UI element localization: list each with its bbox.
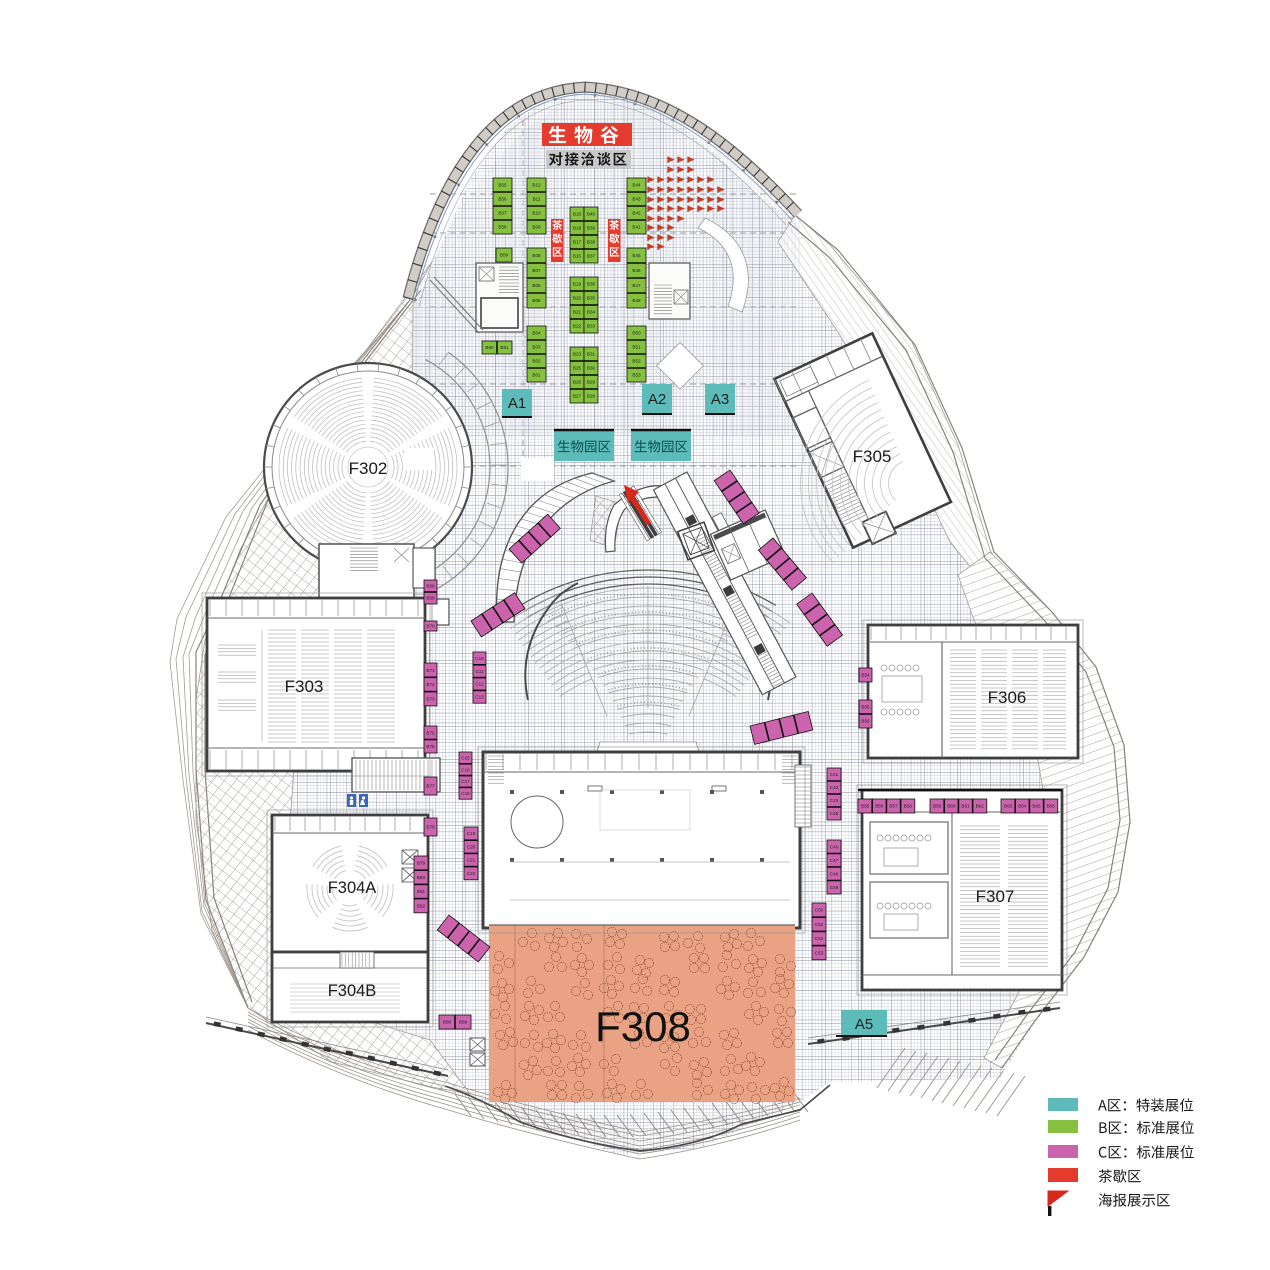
svg-text:B09: B09 [532,225,541,230]
svg-text:B01: B01 [532,373,541,378]
svg-text:B43: B43 [632,197,641,202]
svg-text:C47: C47 [830,858,839,863]
svg-text:B31: B31 [587,352,596,357]
svg-text:B22: B22 [573,324,582,329]
svg-text:C15: C15 [461,756,470,761]
svg-text:B59: B59 [933,804,942,809]
svg-text:A1: A1 [508,395,526,412]
svg-text:B66: B66 [1047,804,1056,809]
svg-text:B71: B71 [426,668,435,673]
svg-text:C53: C53 [815,950,824,955]
svg-text:B65: B65 [1032,804,1041,809]
svg-text:C17: C17 [461,779,470,784]
svg-text:B34: B34 [587,310,596,315]
svg-text:B76: B76 [426,744,435,749]
svg-text:B12: B12 [532,183,541,188]
svg-text:B11: B11 [533,197,541,202]
svg-text:C10: C10 [475,656,484,661]
svg-text:B07: B07 [532,268,541,273]
svg-text:B82: B82 [417,903,426,908]
svg-text:B25: B25 [573,366,582,371]
svg-text:B57: B57 [889,804,898,809]
svg-text:A3: A3 [711,391,729,408]
svg-text:C43: C43 [830,798,839,803]
svg-text:B37: B37 [587,254,596,259]
svg-text:C21: C21 [467,858,476,863]
svg-text:B62: B62 [976,804,985,809]
svg-text:B17: B17 [573,240,582,245]
svg-text:A2: A2 [648,391,666,408]
svg-text:B54: B54 [861,673,870,678]
svg-text:B50: B50 [632,331,641,336]
svg-text:B70: B70 [426,624,435,629]
svg-text:F306: F306 [988,688,1027,707]
svg-text:B73: B73 [426,696,435,701]
svg-text:C12: C12 [475,682,484,687]
svg-text:B30: B30 [587,366,596,371]
svg-text:B10: B10 [532,211,541,216]
svg-text:F308: F308 [595,1003,691,1050]
svg-text:B55: B55 [861,804,870,809]
svg-text:B79: B79 [417,861,426,866]
svg-text:B47: B47 [632,283,641,288]
svg-text:B19: B19 [573,282,582,287]
svg-text:B39: B39 [587,226,596,231]
svg-text:B06: B06 [532,283,541,288]
svg-text:A5: A5 [855,1016,873,1033]
svg-text:B33: B33 [587,324,596,329]
svg-text:B80: B80 [417,875,426,880]
svg-text:B48: B48 [632,298,641,303]
svg-text:B29: B29 [587,380,596,385]
svg-text:B42: B42 [632,211,641,216]
svg-text:B58: B58 [498,225,507,230]
svg-text:B88: B88 [443,1020,452,1025]
svg-text:B55: B55 [498,183,507,188]
svg-text:C19: C19 [467,831,476,836]
svg-text:B03: B03 [532,345,541,350]
svg-text:B21: B21 [573,310,582,315]
svg-text:B02: B02 [532,359,541,364]
svg-text:F303: F303 [285,677,324,696]
svg-text:B52: B52 [632,359,641,364]
svg-text:C11: C11 [475,669,484,674]
svg-text:B53: B53 [632,373,641,378]
svg-text:B44: B44 [632,183,641,188]
svg-text:B40: B40 [587,212,596,217]
svg-text:B75: B75 [426,730,435,735]
svg-text:B36: B36 [587,282,596,287]
svg-text:B89: B89 [459,1020,468,1025]
svg-text:B46: B46 [632,268,641,273]
svg-text:B26: B26 [573,380,582,385]
svg-text:B69: B69 [426,596,435,601]
svg-text:B60: B60 [947,804,956,809]
svg-text:B08: B08 [532,253,541,258]
svg-text:B56: B56 [875,804,884,809]
svg-text:C52: C52 [815,936,824,941]
svg-text:B55: B55 [861,705,870,710]
svg-text:B61: B61 [961,804,970,809]
svg-text:C16: C16 [461,767,470,772]
svg-text:F307: F307 [976,887,1015,906]
svg-text:F304A: F304A [328,879,377,897]
svg-text:B23: B23 [573,352,582,357]
svg-text:C42: C42 [830,785,839,790]
svg-text:B05: B05 [532,298,541,303]
svg-text:C51: C51 [815,922,824,927]
svg-text:B72: B72 [426,682,435,687]
svg-text:B27: B27 [573,394,582,399]
svg-text:C45: C45 [830,811,839,816]
svg-text:B60: B60 [485,345,494,350]
svg-text:B20: B20 [573,296,582,301]
svg-text:C22: C22 [467,871,476,876]
svg-text:B59: B59 [500,253,509,258]
svg-text:C46: C46 [830,844,839,849]
svg-text:C20: C20 [467,844,476,849]
svg-text:F302: F302 [349,459,388,478]
svg-text:C41: C41 [830,772,839,777]
svg-text:C48: C48 [830,871,839,876]
svg-text:B41: B41 [632,225,641,230]
svg-text:B38: B38 [587,240,596,245]
svg-text:B35: B35 [587,296,596,301]
svg-text:B57: B57 [498,211,507,216]
svg-text:B45: B45 [632,253,641,258]
svg-text:B16: B16 [573,212,582,217]
svg-text:B15: B15 [573,254,582,259]
svg-text:B18: B18 [573,226,582,231]
svg-text:C49: C49 [830,885,839,890]
svg-text:C13: C13 [475,694,484,699]
svg-text:F304B: F304B [328,982,377,1000]
svg-text:B56: B56 [498,197,507,202]
svg-text:B56: B56 [861,719,870,724]
svg-text:B63: B63 [1004,804,1013,809]
svg-text:B58: B58 [904,804,913,809]
svg-text:B61: B61 [500,345,509,350]
svg-text:B64: B64 [1018,804,1027,809]
svg-text:B04: B04 [532,331,541,336]
svg-text:B68: B68 [426,584,435,589]
svg-text:B78: B78 [426,825,435,830]
svg-text:B81: B81 [417,889,426,894]
svg-text:C50: C50 [815,908,824,913]
svg-text:C18: C18 [461,791,470,796]
svg-text:B28: B28 [587,394,596,399]
svg-text:F305: F305 [853,447,892,466]
svg-text:B77: B77 [426,784,435,789]
svg-text:B51: B51 [632,345,641,350]
